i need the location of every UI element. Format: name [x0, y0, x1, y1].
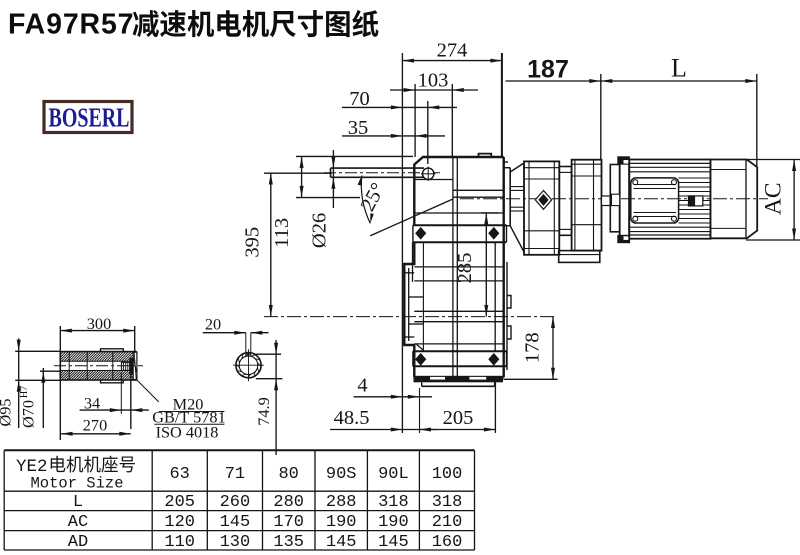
svg-text:270: 270	[83, 416, 107, 435]
svg-text:4: 4	[357, 375, 367, 397]
svg-text:205: 205	[164, 493, 195, 512]
svg-text:103: 103	[418, 70, 449, 92]
svg-text:Ø26: Ø26	[309, 213, 331, 248]
svg-text:Ø70: Ø70	[19, 400, 38, 428]
svg-text:274: 274	[437, 40, 468, 62]
svg-text:178: 178	[522, 332, 544, 363]
svg-text:190: 190	[378, 513, 409, 532]
svg-text:145: 145	[220, 513, 251, 532]
svg-text:ISO 4018: ISO 4018	[156, 423, 219, 442]
svg-text:288: 288	[326, 493, 357, 512]
svg-text:AC: AC	[761, 182, 787, 215]
svg-text:70: 70	[349, 88, 370, 110]
svg-text:Ø95: Ø95	[0, 398, 15, 426]
svg-text:190: 190	[326, 513, 357, 532]
svg-text:145: 145	[378, 533, 409, 552]
svg-text:280: 280	[273, 493, 304, 512]
svg-text:110: 110	[164, 533, 195, 552]
svg-text:205: 205	[443, 407, 474, 429]
svg-text:210: 210	[432, 513, 463, 532]
svg-text:H7: H7	[19, 386, 30, 398]
svg-text:L: L	[671, 54, 687, 83]
svg-text:395: 395	[242, 227, 264, 258]
svg-text:FA97R57: FA97R57	[8, 9, 134, 41]
svg-text:71: 71	[225, 465, 245, 484]
svg-text:63: 63	[169, 465, 189, 484]
svg-text:318: 318	[432, 493, 463, 512]
svg-text:260: 260	[220, 493, 251, 512]
svg-text:Motor Size: Motor Size	[30, 475, 123, 493]
svg-text:130: 130	[220, 533, 251, 552]
svg-text:318: 318	[378, 493, 409, 512]
svg-text:100: 100	[432, 465, 463, 484]
svg-text:AC: AC	[68, 513, 88, 532]
svg-text:80: 80	[278, 465, 298, 484]
svg-text:170: 170	[273, 513, 304, 532]
svg-text:BOSERL: BOSERL	[49, 103, 130, 133]
svg-text:285: 285	[454, 253, 476, 284]
svg-text:120: 120	[164, 513, 195, 532]
svg-text:20: 20	[205, 315, 221, 334]
svg-text:135: 135	[273, 533, 304, 552]
svg-text:145: 145	[326, 533, 357, 552]
svg-text:74.9: 74.9	[254, 397, 273, 426]
svg-text:90S: 90S	[326, 465, 357, 484]
svg-text:90L: 90L	[378, 465, 409, 484]
svg-text:48.5: 48.5	[334, 407, 370, 429]
svg-text:113: 113	[271, 218, 293, 248]
svg-text:L: L	[73, 493, 83, 512]
svg-text:160: 160	[432, 533, 463, 552]
svg-text:187: 187	[527, 56, 569, 84]
svg-text:AD: AD	[68, 533, 88, 552]
